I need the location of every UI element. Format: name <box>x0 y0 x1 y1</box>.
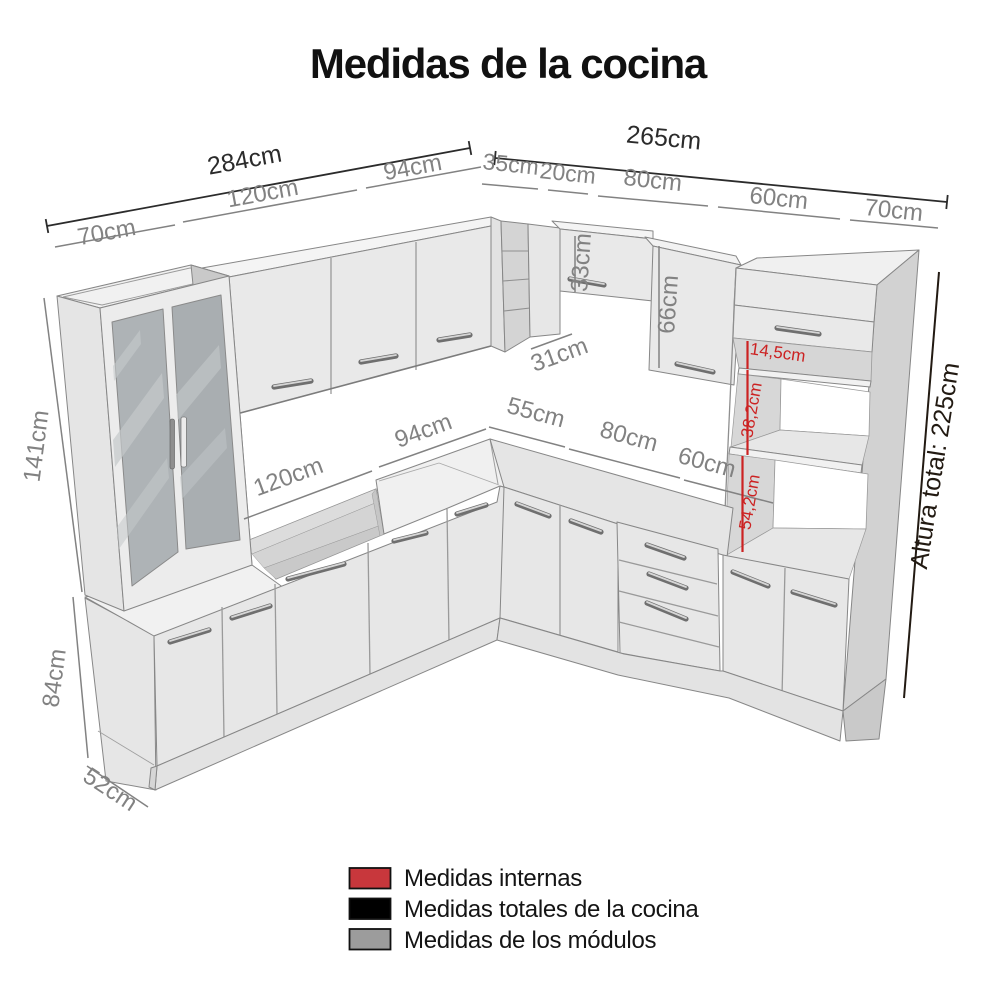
svg-text:Medidas totales de la cocina: Medidas totales de la cocina <box>404 896 699 923</box>
svg-text:66cm: 66cm <box>653 274 684 334</box>
svg-text:33cm: 33cm <box>566 232 597 292</box>
svg-text:Medidas de la cocina: Medidas de la cocina <box>310 40 708 87</box>
svg-text:Medidas internas: Medidas internas <box>404 865 582 892</box>
svg-text:Medidas de los módulos: Medidas de los módulos <box>404 927 657 954</box>
